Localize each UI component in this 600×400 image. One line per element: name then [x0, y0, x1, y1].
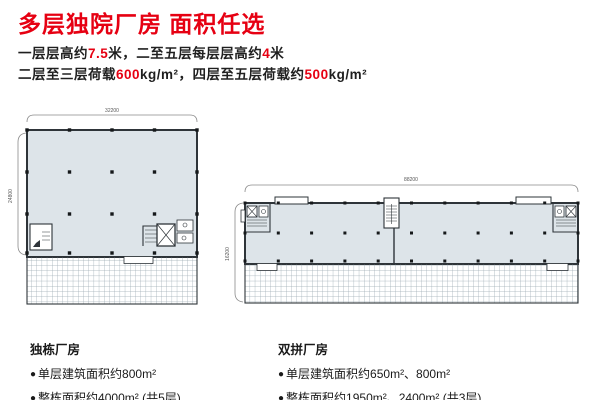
apron-notch	[547, 264, 568, 271]
list-item: ●整栋面积约4000m² (共5层)	[30, 389, 181, 400]
hatch-apron	[245, 264, 578, 303]
section-duplex: 双拼厂房 ●单层建筑面积约650m²、800m² ●整栋面积约1950m²、24…	[278, 339, 481, 400]
section-heading: 独栋厂房	[30, 339, 181, 358]
elevator-icon	[247, 206, 257, 217]
list-item-text: 整栋面积约1950m²、2400m² (共3层)	[286, 391, 481, 400]
dimension-side-left-plan: 24800	[8, 133, 26, 255]
list-item: ●整栋面积约1950m²、2400m² (共3层)	[278, 389, 481, 400]
dimension-depth-label: 24800	[8, 189, 14, 203]
canopy	[275, 197, 308, 204]
dimension-depth-label: 16200	[225, 247, 231, 261]
list-item: ●单层建筑面积约650m²、800m²	[278, 365, 481, 382]
elevator-icon	[157, 224, 175, 246]
elevator-icon	[566, 206, 576, 217]
dimension-side-right-plan: 16200	[225, 203, 243, 302]
stairs-icon	[384, 198, 399, 228]
bullet-icon: ●	[278, 369, 284, 380]
stairs-icon	[30, 224, 52, 250]
bullet-icon: ●	[30, 393, 36, 400]
list-item-text: 单层建筑面积约650m²、800m²	[286, 367, 450, 381]
list-item-text: 单层建筑面积约800m²	[38, 367, 156, 381]
page: 多层独院厂房 面积任选 一层层高约7.5米，二至五层每层层高约4米 二层至三层荷…	[0, 0, 600, 400]
dimension-top-right-plan: 88200	[245, 177, 578, 192]
hatch-apron	[27, 257, 197, 304]
dimension-top-left-plan: 32200	[27, 108, 197, 122]
floor-plan-detached: 32200 24800	[8, 108, 199, 304]
bullet-icon: ●	[278, 393, 284, 400]
apron-notch	[257, 264, 277, 271]
apron-notch	[124, 257, 153, 264]
section-heading: 双拼厂房	[278, 339, 481, 358]
floor-plan-duplex: 88200 16200	[225, 177, 580, 303]
bullet-icon: ●	[30, 369, 36, 380]
dimension-width-label: 32200	[105, 108, 119, 114]
dimension-width-label: 88200	[404, 177, 418, 183]
section-detached: 独栋厂房 ●单层建筑面积约800m² ●整栋面积约4000m² (共5层)	[30, 339, 181, 400]
list-item: ●单层建筑面积约800m²	[30, 365, 181, 382]
list-item-text: 整栋面积约4000m² (共5层)	[38, 391, 181, 400]
